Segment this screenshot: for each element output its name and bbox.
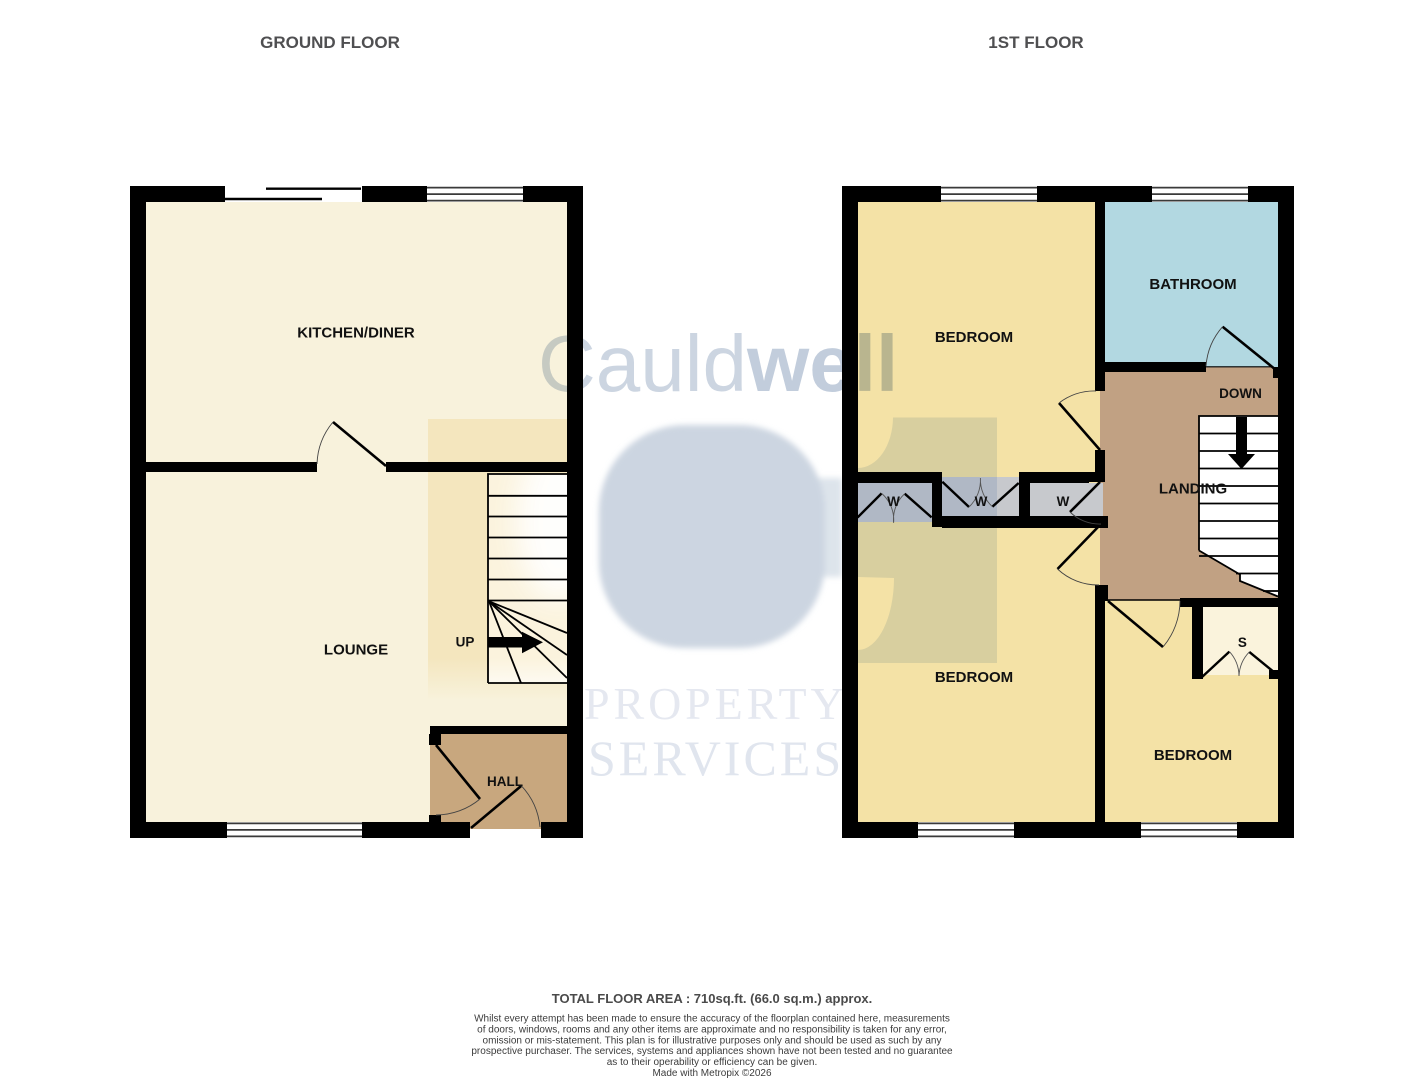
svg-text:TOTAL FLOOR AREA : 710sq.ft. (: TOTAL FLOOR AREA : 710sq.ft. (66.0 sq.m.… [552,991,872,1006]
svg-text:W: W [975,494,988,509]
svg-text:prospective purchaser. The ser: prospective purchaser. The services, sys… [471,1046,953,1057]
svg-text:PROPERTY: PROPERTY [584,678,848,729]
svg-text:Made with Metropix ©2026: Made with Metropix ©2026 [652,1068,772,1079]
svg-text:S: S [1238,635,1247,650]
svg-text:KITCHEN/DINER: KITCHEN/DINER [297,325,415,342]
svg-text:as to their operability or eff: as to their operability or efficiency ca… [607,1057,818,1068]
svg-text:of doors, windows, rooms and a: of doors, windows, rooms and any other i… [477,1024,947,1035]
svg-text:BEDROOM: BEDROOM [935,329,1013,346]
svg-text:Whilst every attempt has been: Whilst every attempt has been made to en… [474,1014,950,1025]
svg-text:BEDROOM: BEDROOM [1154,747,1232,764]
svg-text:BATHROOM: BATHROOM [1149,276,1236,293]
svg-text:1ST FLOOR: 1ST FLOOR [988,33,1083,52]
svg-text:W: W [1057,494,1070,509]
svg-text:UP: UP [456,635,475,650]
svg-text:omission or mis-statement. Thi: omission or mis-statement. This plan is … [483,1035,942,1046]
svg-text:HALL: HALL [487,774,523,789]
svg-text:LOUNGE: LOUNGE [324,642,388,659]
svg-text:W: W [887,494,900,509]
svg-text:BEDROOM: BEDROOM [935,669,1013,686]
svg-text:LANDING: LANDING [1159,481,1227,498]
svg-text:SERVICES: SERVICES [588,730,844,786]
svg-text:GROUND FLOOR: GROUND FLOOR [260,33,400,52]
svg-text:DOWN: DOWN [1219,386,1262,401]
